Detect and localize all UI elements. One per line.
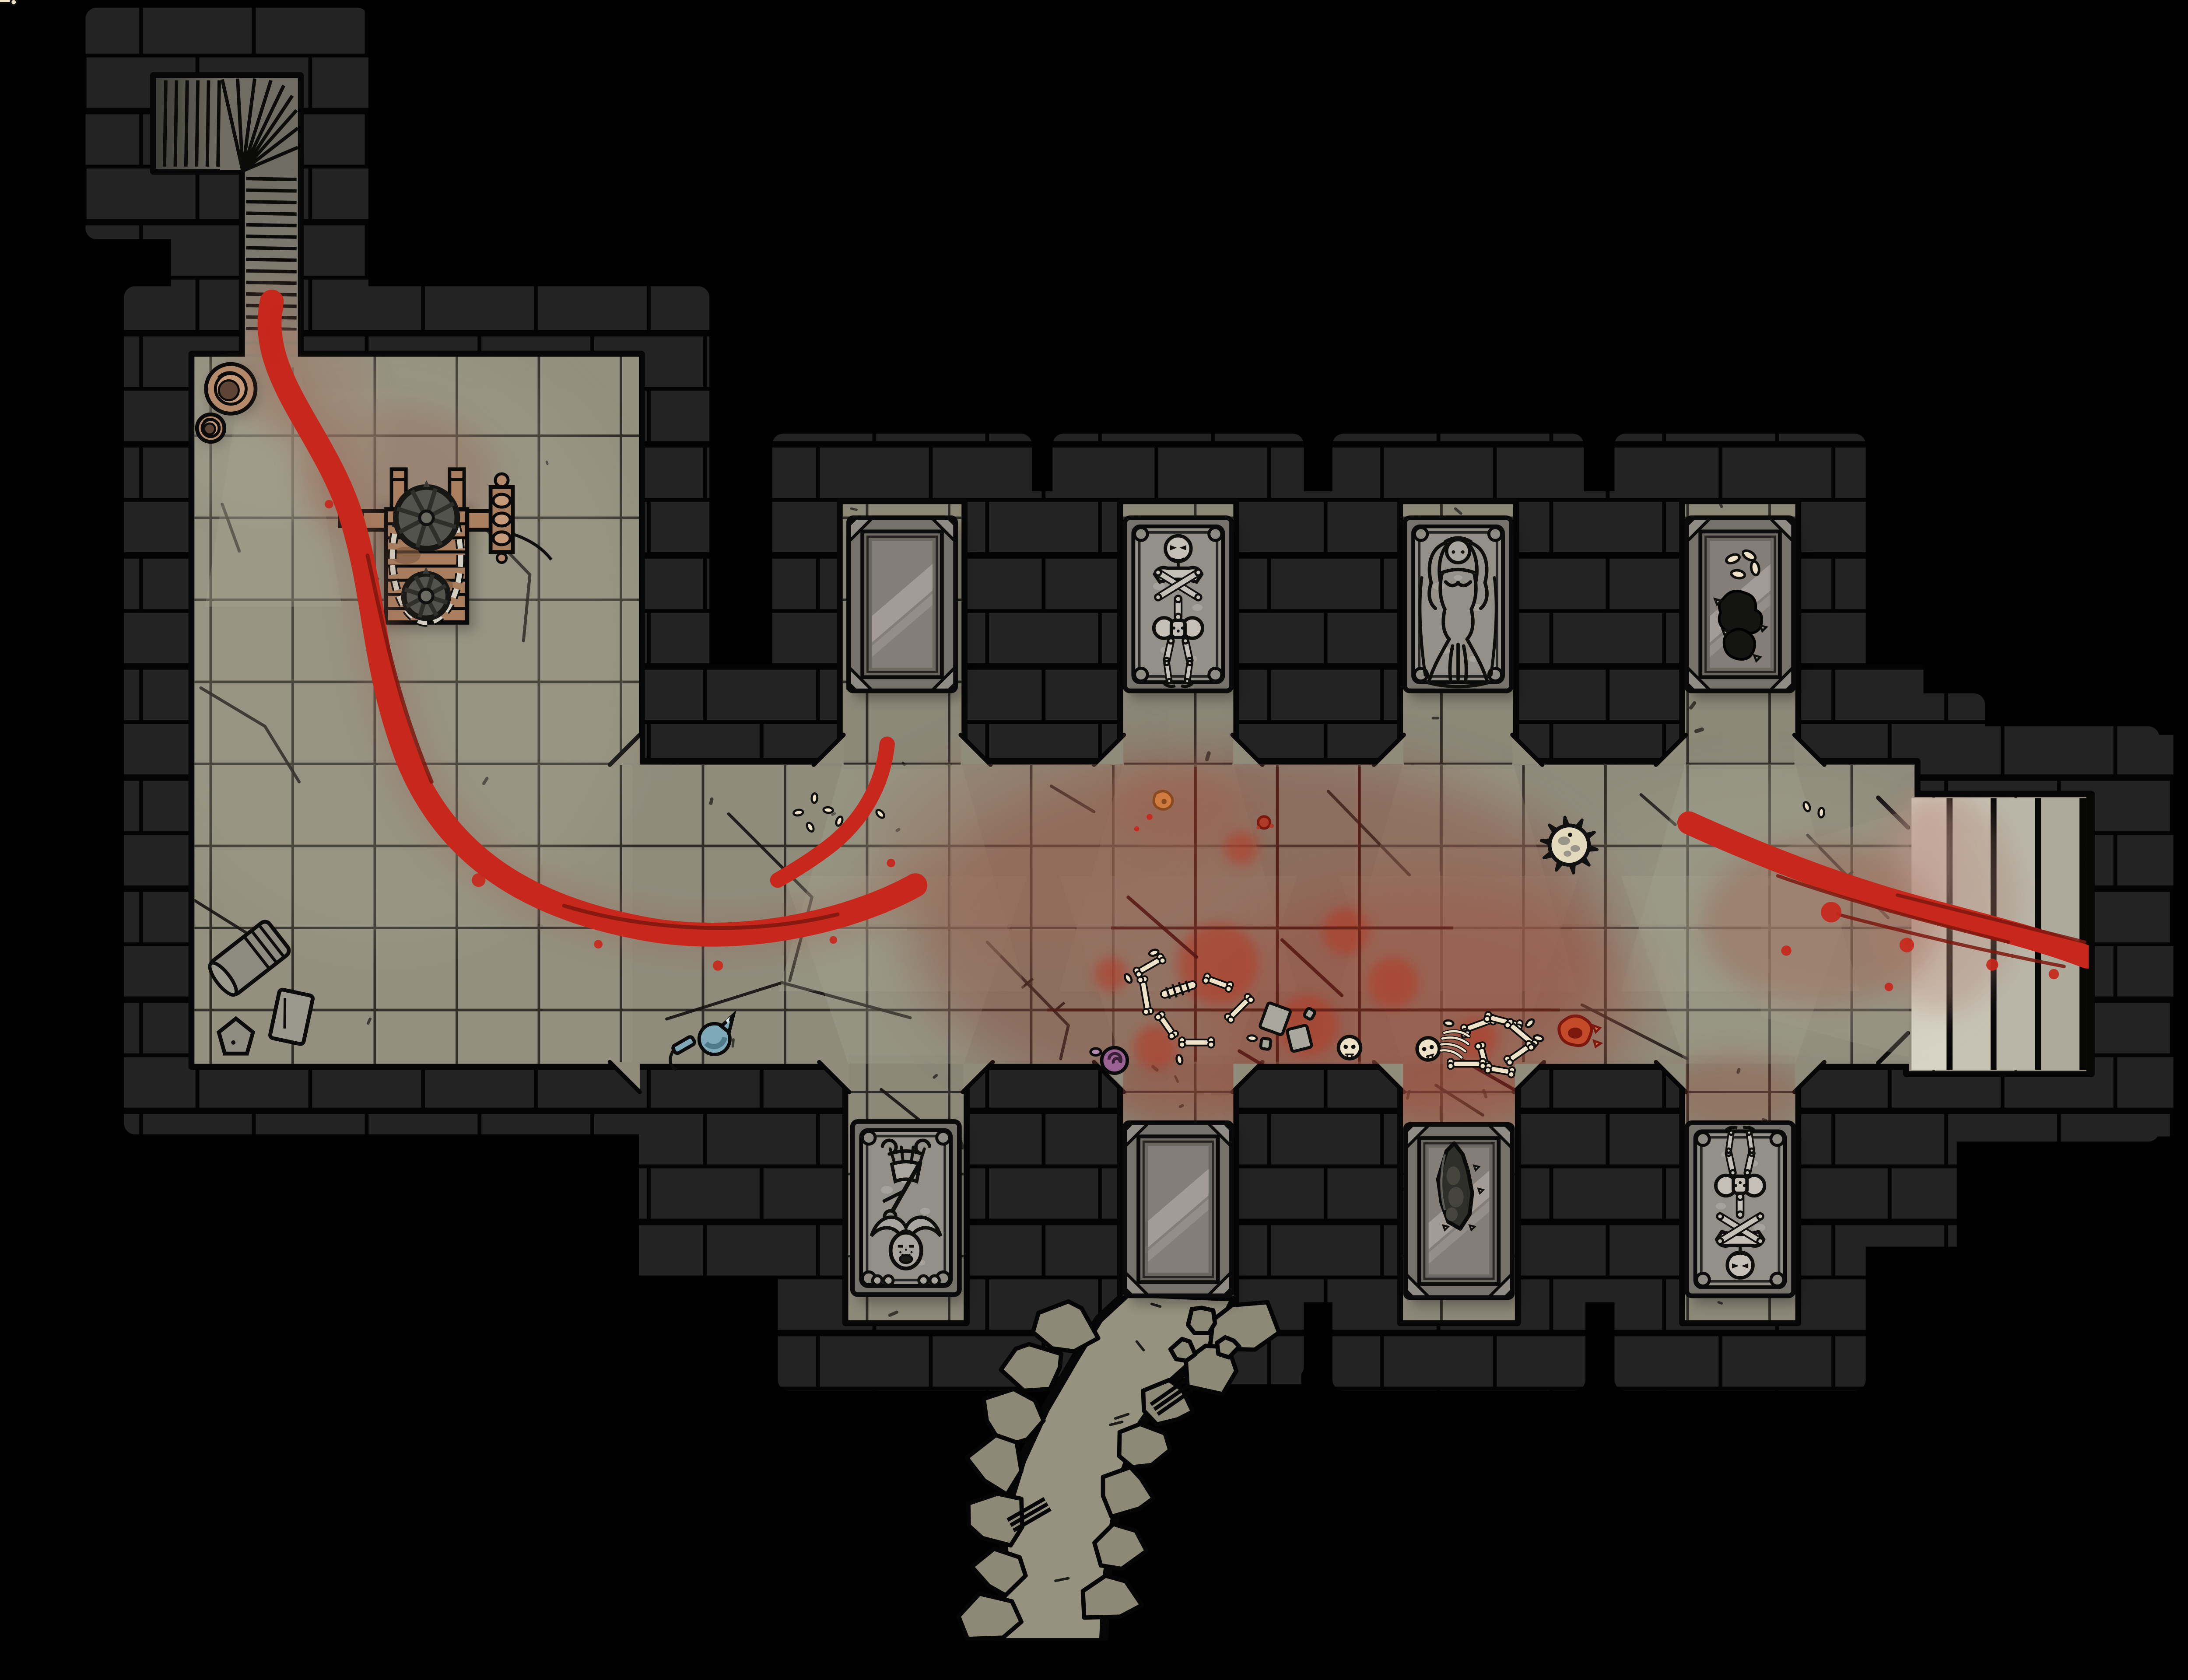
face-dot	[908, 1254, 911, 1256]
bone-knob	[1483, 1015, 1491, 1023]
bone-chip	[793, 809, 803, 816]
lid-corner-knob	[1697, 1133, 1709, 1145]
eye-socket	[1343, 1045, 1348, 1049]
jar-shard	[1090, 1048, 1101, 1055]
bone-knob	[1196, 570, 1201, 575]
dried-blood-spot	[1224, 831, 1259, 865]
lid-corner-knob	[1771, 1273, 1784, 1286]
bone-knob	[1185, 679, 1189, 683]
pot-opening	[204, 423, 215, 434]
bone-knob	[1757, 1238, 1763, 1244]
skull	[1339, 1036, 1361, 1059]
clay-pot-large	[206, 364, 261, 420]
shroud-fold	[1447, 1166, 1460, 1185]
lid-blotch	[1192, 604, 1203, 611]
bone-chip	[1818, 808, 1824, 817]
bone-chip	[1176, 1054, 1183, 1065]
pelvis-dot	[1743, 1184, 1746, 1187]
sarcophagus-top-1-open-empty	[849, 518, 955, 691]
bone-chip	[811, 793, 817, 803]
blood-trail-stairs-west	[273, 308, 277, 360]
bone-knob	[1448, 1063, 1454, 1069]
bone-knob	[1164, 661, 1169, 665]
rack-crank-handle	[497, 553, 506, 563]
carved-skull	[1727, 1252, 1753, 1278]
dried-blood-spot	[1367, 957, 1419, 1008]
east-stair-edge	[2086, 794, 2094, 1073]
mace-blotch	[1571, 845, 1580, 852]
bone-knob	[1155, 595, 1161, 600]
mace-blotch	[1564, 850, 1571, 857]
blood-splatter	[1781, 945, 1791, 955]
stone-fragment	[1287, 1025, 1312, 1052]
bone-chip	[793, 809, 803, 816]
lid-blotch	[1454, 575, 1462, 580]
bone-knob	[1717, 1214, 1723, 1219]
bone-knob	[1745, 1170, 1750, 1176]
bone-knob	[1726, 1148, 1731, 1153]
scattered-bone	[1448, 1059, 1486, 1069]
bone-knob	[1155, 570, 1161, 575]
blood-splatter	[278, 351, 286, 359]
face-dot	[899, 1251, 901, 1253]
cave-rubble	[1188, 1308, 1215, 1333]
floor-speck	[711, 799, 712, 803]
bone-knob	[1747, 1130, 1751, 1135]
lid-blotch	[920, 1208, 930, 1215]
face-mouth	[900, 1255, 912, 1263]
gore-dot	[1161, 799, 1167, 804]
dried-blood-wash	[1115, 767, 1244, 848]
pelvis-dot	[1734, 1184, 1737, 1187]
lid-blotch	[881, 1186, 893, 1194]
dried-blood-spot	[1094, 957, 1128, 991]
pelvis-dot	[1739, 1181, 1742, 1184]
dungeon-map-canvas[interactable]	[0, 0, 2188, 1641]
blood-splatter	[472, 873, 485, 887]
blood-splatter	[830, 936, 838, 944]
bone-chip	[1444, 1020, 1454, 1027]
bone-knob	[1750, 1148, 1754, 1153]
bone-knob	[1179, 1042, 1185, 1048]
blood-splatter	[1134, 826, 1140, 832]
bone-knob	[1717, 1238, 1723, 1244]
face-eye	[1461, 550, 1465, 554]
bone-knob	[1729, 1130, 1733, 1135]
bone-knob	[1167, 679, 1171, 683]
bone-knob	[1137, 976, 1144, 983]
blood-splatter	[1885, 983, 1893, 991]
lid-corner-knob	[1135, 668, 1147, 681]
blood-splatter	[1986, 959, 1998, 970]
gore-splat	[1258, 816, 1270, 828]
blood-splatter	[293, 404, 305, 416]
bone-knob	[1508, 1071, 1515, 1078]
bone-knob	[1183, 638, 1188, 644]
bone-chip	[1444, 1020, 1454, 1027]
bone-knob	[1188, 661, 1192, 665]
carved-bone-end	[884, 1276, 893, 1285]
blood-splatter	[1730, 845, 1740, 855]
sarcophagus-top-4-open-remains	[1687, 518, 1793, 691]
gore-dot	[1269, 824, 1274, 828]
pot-opening	[219, 380, 238, 400]
floor-speck	[733, 1039, 733, 1046]
shroud-fold	[1448, 1187, 1464, 1207]
sarcophagus-bottom-3-shrouded	[1406, 1124, 1512, 1298]
bone-chip	[1818, 808, 1824, 817]
shroud-fold	[1446, 1207, 1458, 1221]
lid-blotch	[1716, 1203, 1726, 1210]
blood-splatter	[325, 500, 333, 509]
dungeon-map-stage	[0, 0, 2188, 1641]
dried-blood-spot	[1322, 908, 1369, 955]
blood-splatter	[1821, 902, 1841, 923]
gore-dot	[1256, 826, 1260, 829]
bone-knob	[1208, 1042, 1214, 1048]
carved-bone-end	[919, 1276, 928, 1285]
bone-knob	[1757, 1214, 1763, 1219]
stone-fragment	[1260, 1038, 1271, 1050]
mace-hole	[1568, 833, 1572, 837]
face-eye	[1452, 550, 1455, 554]
blood-splatter	[887, 859, 895, 868]
face-dot	[905, 1249, 907, 1251]
floor-speck	[851, 508, 856, 510]
bone-knob	[1484, 1067, 1491, 1074]
lid-corner-knob	[1489, 528, 1501, 540]
sarcophagus-bottom-2-open-empty	[1125, 1123, 1231, 1296]
blood-splatter	[1900, 938, 1914, 952]
lid-corner-knob	[1209, 528, 1222, 540]
pelvis-dot	[1172, 626, 1175, 630]
floor-speck	[368, 1019, 370, 1023]
carved-skull	[1165, 536, 1191, 562]
pelvis-dot	[1181, 626, 1184, 630]
lid-corner-knob	[863, 1131, 875, 1144]
lid-corner-knob	[1135, 528, 1147, 540]
bone-knob	[1730, 1170, 1736, 1176]
sarcophagus-bottom-4-skeleton-lid	[1687, 1123, 1793, 1296]
floor-speck	[934, 1075, 937, 1078]
bone-knob	[1737, 1211, 1743, 1218]
rack-crank-handle	[495, 474, 508, 486]
bone-knob	[1143, 1008, 1150, 1015]
face-dot	[901, 1254, 904, 1256]
skull	[1339, 1036, 1361, 1059]
blood-splatter	[1147, 814, 1153, 820]
bone-chip	[823, 807, 833, 813]
dark-remains	[1724, 629, 1755, 659]
gib-hole	[1568, 1028, 1582, 1039]
lid-corner-knob	[937, 1131, 950, 1144]
bone-knob	[1196, 595, 1201, 600]
bone-chip	[811, 793, 817, 803]
sarcophagus-top-2-skeleton-lid	[1125, 518, 1231, 691]
carved-bone-end	[930, 1276, 939, 1285]
face-dot	[911, 1251, 913, 1253]
bone-chip	[1247, 1035, 1257, 1042]
lid-corner-knob	[1697, 1273, 1709, 1286]
lid-corner-knob	[1771, 1133, 1784, 1145]
floor-speck	[1721, 504, 1722, 507]
carved-face	[1447, 539, 1470, 563]
blood-splatter	[854, 822, 859, 827]
rack-crank-knob	[493, 513, 510, 526]
rack-wheel-hub	[419, 589, 433, 603]
bone-chip	[823, 807, 833, 813]
blood-splatter	[713, 960, 723, 970]
eye-socket	[1351, 1045, 1356, 1049]
blood-splatter	[2049, 969, 2059, 979]
bone-knob	[1225, 985, 1233, 993]
bone-knob	[11, 0, 17, 5]
mace-blotch	[1558, 836, 1570, 845]
blood-splatter	[594, 940, 603, 948]
carved-bone-end	[873, 1276, 882, 1285]
bone-chip	[1247, 1035, 1257, 1042]
rack-wheel-hub	[420, 511, 433, 525]
lid-corner-knob	[1414, 528, 1427, 540]
east-stair-riser	[2079, 798, 2086, 1070]
floor-speck	[1696, 729, 1702, 731]
stone-fragment	[1287, 1025, 1312, 1052]
bone-knob	[1202, 976, 1210, 984]
sarcophagus-top-3-woman-lid	[1405, 518, 1511, 691]
pelvis-dot	[1177, 630, 1180, 633]
gore-chunk	[1154, 791, 1173, 809]
sarcophagus-bottom-1-effigy-lid	[852, 1121, 959, 1295]
rack-crank-knob	[493, 494, 510, 507]
mace-head	[1550, 826, 1589, 865]
bone-knob	[1175, 596, 1182, 602]
blood-splatter	[382, 713, 392, 723]
bone-chip	[1176, 1054, 1183, 1065]
blood-splatter	[863, 800, 869, 806]
rack-crank-knob	[493, 532, 510, 545]
lid-corner-knob	[1209, 668, 1222, 681]
scattered-bone	[1179, 1037, 1214, 1047]
rock-pock	[231, 1040, 235, 1045]
bone-knob	[1475, 1043, 1482, 1050]
bone-knob	[1168, 638, 1174, 644]
stone-fragment	[1260, 1038, 1271, 1050]
